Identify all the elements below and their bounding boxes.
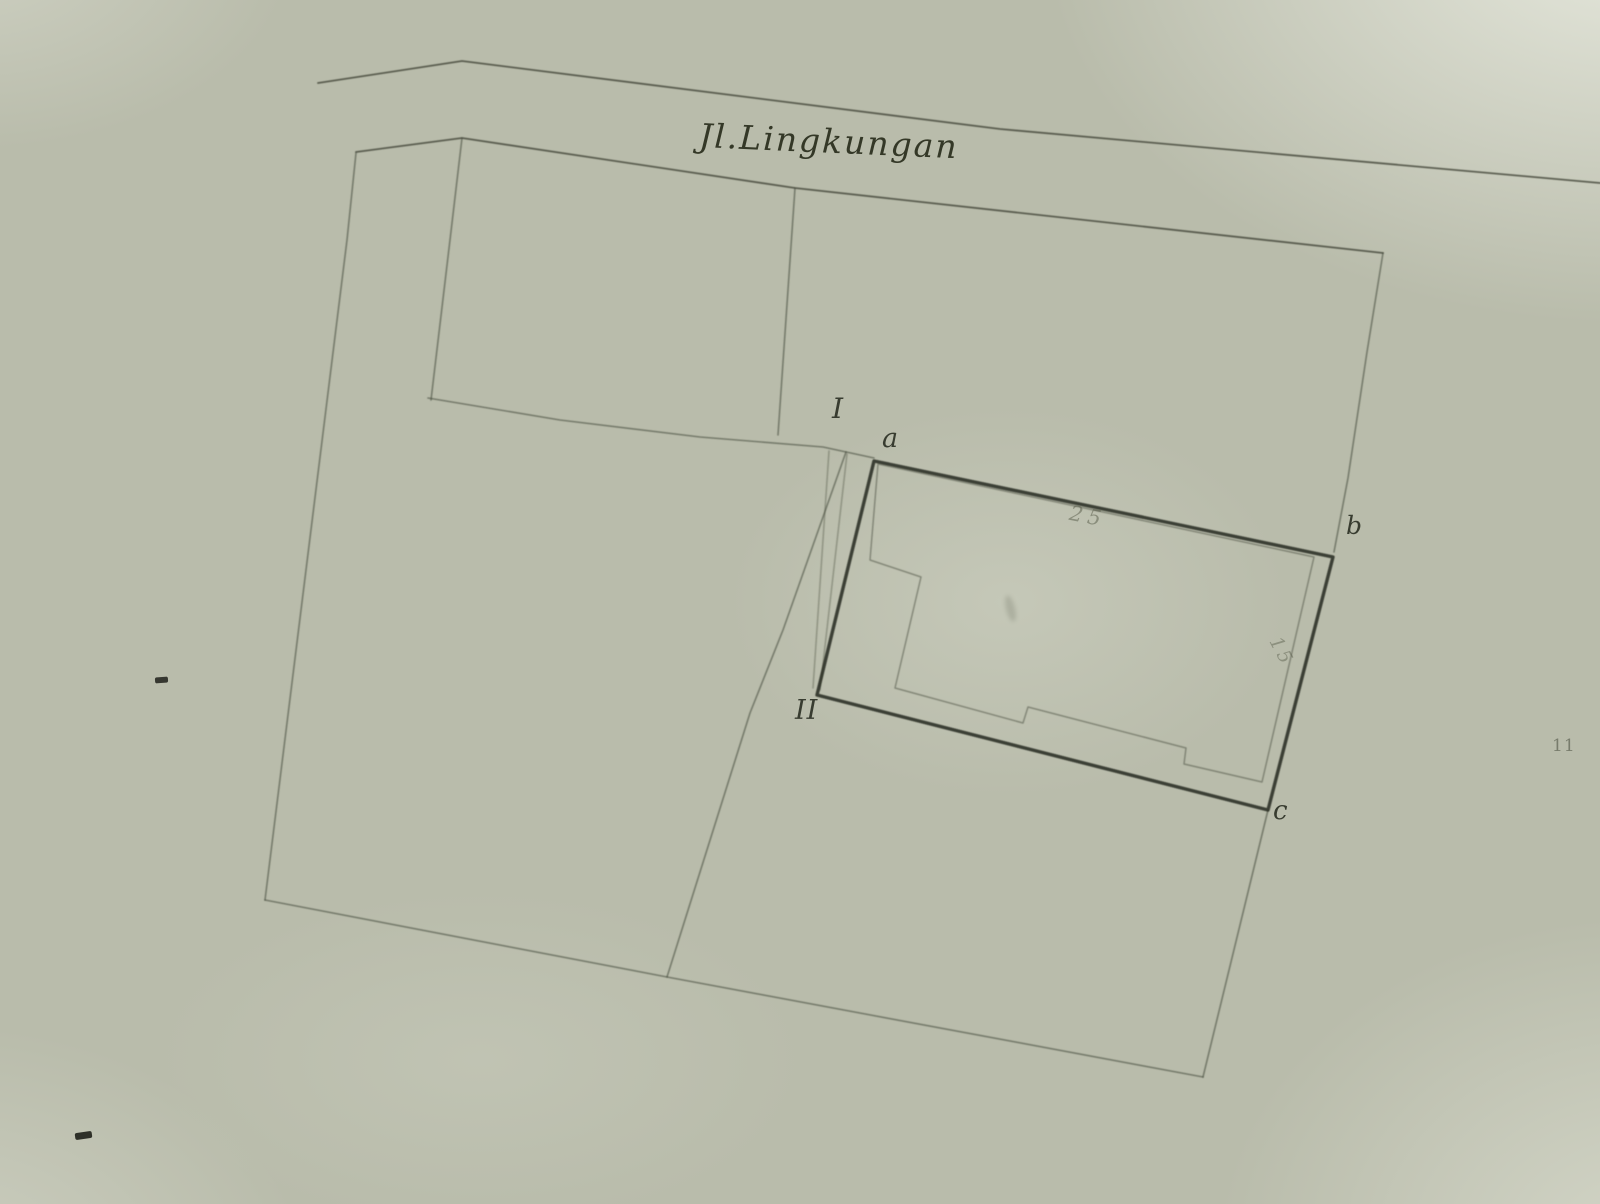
outer-parcel-right-boundary-lower [1203, 810, 1268, 1077]
point-label-b: b [1346, 511, 1362, 540]
point-label-I: I [832, 392, 843, 425]
point-label-c: c [1273, 796, 1288, 826]
outer-parcel-left-boundary [265, 153, 356, 900]
middle-boundary-line [428, 398, 874, 458]
scanned-survey-map: Jl.Lingkungan I a b II c 25 15 11 [0, 0, 1600, 1204]
point-label-II: II [795, 695, 818, 726]
inner-parcel-left-boundary [431, 138, 462, 400]
inner-parcel-right-boundary [778, 188, 795, 435]
edge-mark-annotation: 11 [1552, 736, 1576, 756]
ink-mark [155, 677, 168, 684]
left-middle-parcel-boundary [667, 452, 846, 977]
outer-parcel-bottom-boundary [265, 900, 1203, 1077]
map-linework [0, 0, 1600, 1204]
outer-parcel-right-boundary-upper [1334, 253, 1383, 552]
point-label-a: a [882, 423, 898, 454]
road-upper-edge-line [318, 61, 1600, 183]
